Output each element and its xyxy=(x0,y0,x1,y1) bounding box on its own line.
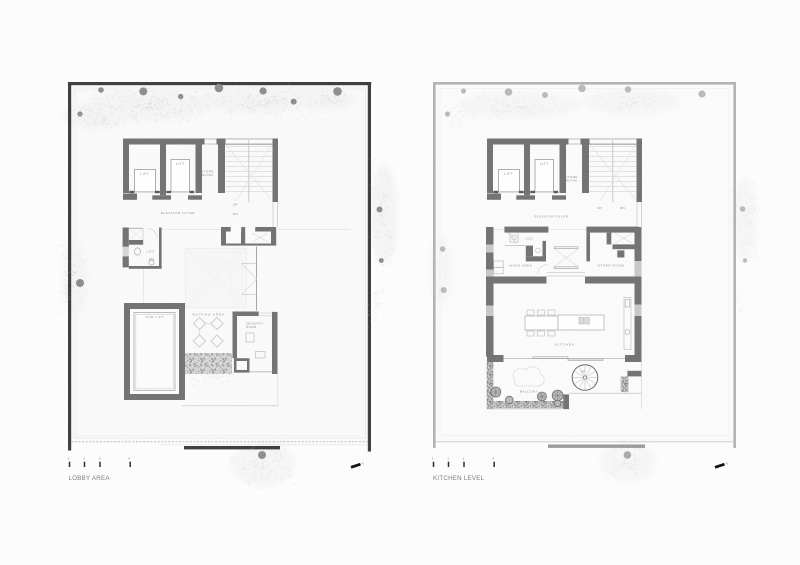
svg-text:ROOM: ROOM xyxy=(246,325,257,329)
svg-text:WASH AREA: WASH AREA xyxy=(509,264,533,268)
svg-text:DN: DN xyxy=(620,206,625,210)
svg-text:STORE ROOM: STORE ROOM xyxy=(598,264,625,268)
svg-text:ELEVATOR FOYER: ELEVATOR FOYER xyxy=(161,211,195,215)
svg-text:ROOM: ROOM xyxy=(566,179,577,183)
svg-text:LIFT: LIFT xyxy=(140,172,149,176)
svg-text:DN: DN xyxy=(233,212,238,216)
svg-text:BALCONY: BALCONY xyxy=(520,390,539,394)
svg-text:UP: UP xyxy=(597,206,602,210)
svg-text:LIFT: LIFT xyxy=(540,162,549,166)
svg-text:KITCHEN: KITCHEN xyxy=(555,343,574,347)
svg-text:LIFT: LIFT xyxy=(176,162,185,166)
svg-text:ROOM: ROOM xyxy=(202,173,213,177)
svg-text:ELEVATOR FOYER: ELEVATOR FOYER xyxy=(535,215,569,219)
svg-text:UP: UP xyxy=(233,203,238,207)
svg-text:WAITING AREA: WAITING AREA xyxy=(192,312,224,316)
svg-text:LOO: LOO xyxy=(525,237,533,241)
svg-text:LOO: LOO xyxy=(147,250,155,254)
svg-text:LOBBY AREA: LOBBY AREA xyxy=(69,475,111,482)
svg-text:CAR LIFT: CAR LIFT xyxy=(146,315,164,319)
svg-text:LIFT: LIFT xyxy=(504,172,513,176)
svg-text:KITCHEN LEVEL: KITCHEN LEVEL xyxy=(433,475,485,482)
